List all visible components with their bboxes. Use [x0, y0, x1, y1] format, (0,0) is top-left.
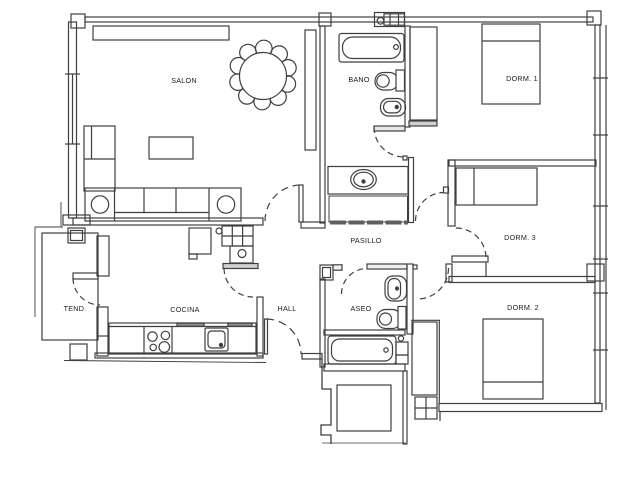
svg-text:COCINA: COCINA — [170, 305, 199, 314]
svg-text:SALON: SALON — [171, 76, 197, 85]
svg-text:ASEO: ASEO — [351, 304, 372, 313]
svg-text:HALL: HALL — [278, 304, 297, 313]
svg-text:PASILLO: PASILLO — [350, 236, 381, 245]
svg-text:DORM. 3: DORM. 3 — [504, 233, 536, 242]
svg-text:DORM. 1: DORM. 1 — [506, 74, 538, 83]
svg-text:DORM. 2: DORM. 2 — [507, 303, 539, 312]
svg-text:TEND.: TEND. — [64, 304, 87, 313]
svg-text:BANO: BANO — [348, 75, 370, 84]
